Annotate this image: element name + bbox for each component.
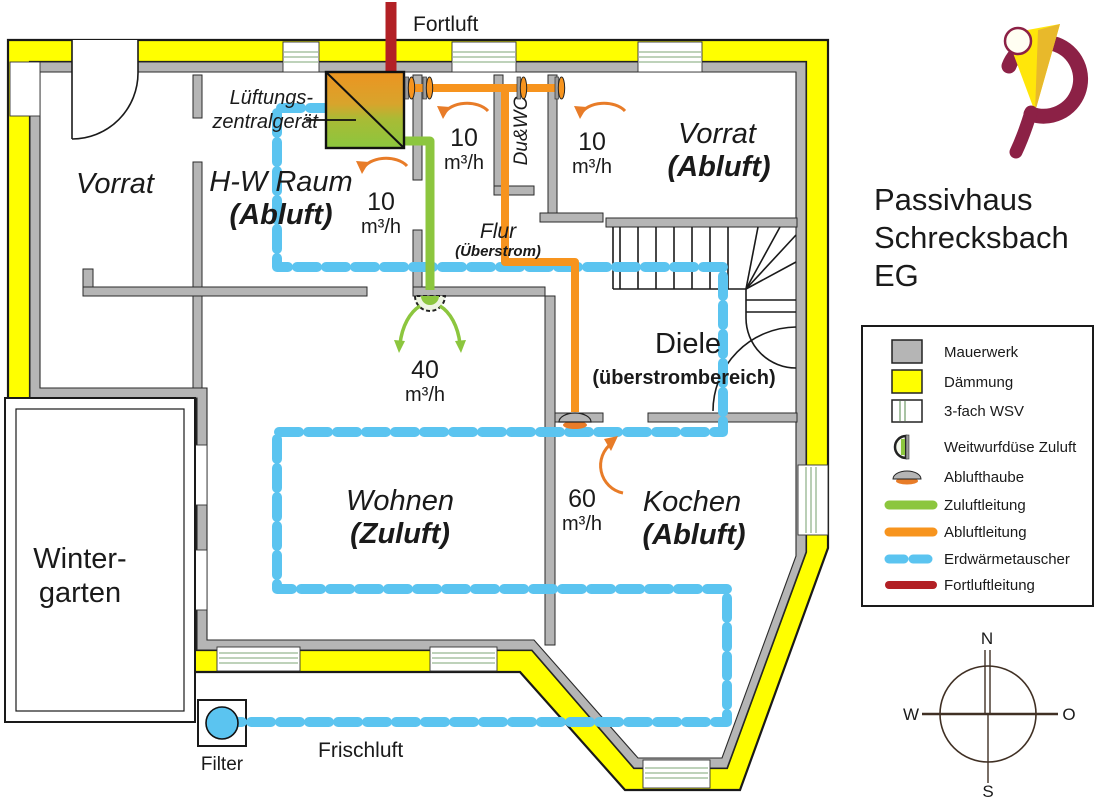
abluft-flow-arrow-wc [437,103,488,119]
ablufthaube [559,413,591,429]
compass-east: O [1062,705,1075,724]
entry-door-arc [72,73,138,139]
room-duwc: Du&WC [511,96,532,165]
frischluft-label: Frischluft [318,739,403,762]
flow-wc-unit: m³/h [444,152,484,174]
logo-circle [1005,28,1031,54]
legend-swatch-mauerwerk [892,340,922,363]
stairs-door-arc [746,318,796,368]
room-wohnen-mode: (Zuluft) [350,518,450,550]
abluft-flow-arrow-vorrat [574,103,625,119]
zuluft-flow-arrows [394,306,466,353]
room-vorrat-ne: Vorrat [678,118,758,150]
window-top-3 [638,42,702,72]
filter-disc [206,707,238,739]
flow-kochen-unit: m³/h [562,513,602,535]
unit-label-line1: Lüftungs- [230,87,314,109]
legend-label-abluftleitung: Abluftleitung [944,524,1027,541]
abluft-flow-arrow-hw [356,158,407,174]
room-wohnen: Wohnen [346,485,454,517]
compass-south: S [982,782,993,798]
room-hw-mode: (Abluft) [229,199,332,231]
wall-notch [10,62,40,116]
fortluft-label: Fortluft [413,13,479,36]
floor-plan: Fortluft Lüftungs- zentralgerät Vorrat H… [5,2,828,790]
room-flur-mode: (Überstrom) [455,243,541,260]
window-top-2 [452,42,516,72]
flow-hw-value: 10 [367,188,395,216]
flow-wc-value: 10 [450,124,478,152]
room-kochen-mode: (Abluft) [642,519,745,551]
flow-wohnen-unit: m³/h [405,384,445,406]
flow-wohnen-value: 40 [411,356,439,384]
window-south-2 [430,647,497,671]
flow-vorrat-unit: m³/h [572,156,612,178]
window-bay-south [643,760,710,788]
passivhaus-logo [1005,24,1081,152]
flow-vorrat-value: 10 [578,128,606,156]
legend: Mauerwerk Dämmung 3-fach WSV Weitwurfdüs… [862,326,1093,606]
room-diele-mode: (überstrombereich) [592,367,775,389]
room-vorrat-nw: Vorrat [76,168,156,200]
passivhaus-eg-diagram: Fortluft Lüftungs- zentralgerät Vorrat H… [0,0,1100,798]
legend-label-zuluftleitung: Zuluftleitung [944,497,1026,514]
legend-swatch-ablufthaube [893,471,921,485]
legend-swatch-daemmung [892,370,922,393]
window-top-1 [283,42,319,72]
page-title: Passivhaus Schrecksbach EG [874,182,1069,293]
room-wintergarten-line2: garten [39,577,121,609]
legend-label-wsv: 3-fach WSV [944,403,1024,420]
legend-label-fortluftleitung: Fortluftleitung [944,577,1035,594]
unit-label-line2: zentralgerät [211,111,319,133]
title-line3: EG [874,258,919,293]
flow-hw-unit: m³/h [361,216,401,238]
abluft-valve-4 [555,77,565,99]
abluft-valve-1 [405,77,415,99]
filter-label: Filter [201,754,244,775]
window-east [798,465,828,535]
compass-west: W [903,705,919,724]
entry-door-opening [72,40,138,139]
room-flur: Flur [480,220,517,243]
room-vorrat-ne-mode: (Abluft) [667,151,770,183]
room-hw: H-W Raum [209,166,352,198]
room-wintergarten-line1: Winter- [33,543,126,575]
compass-north: N [981,629,993,648]
room-diele: Diele [655,328,721,360]
compass-rose: N S W O [903,629,1076,798]
title-line2: Schrecksbach [874,220,1069,255]
legend-label-daemmung: Dämmung [944,374,1013,391]
title-line1: Passivhaus [874,182,1033,217]
abluft-valve-3 [517,77,527,99]
window-south-1 [217,647,300,671]
legend-swatch-weitwurfduese [895,435,909,459]
abluft-valve-2 [423,77,433,99]
legend-label-ablufthaube: Ablufthaube [944,469,1024,486]
legend-label-mauerwerk: Mauerwerk [944,344,1019,361]
legend-swatch-wsv [892,400,922,422]
weitwurfduese-zuluft [415,296,445,311]
flow-kochen-value: 60 [568,485,596,513]
legend-label-weitwurfduese: Weitwurfdüse Zuluft [944,439,1077,456]
room-kochen: Kochen [643,486,741,518]
legend-label-erdwaermetauscher: Erdwärmetauscher [944,551,1070,568]
abluft-flow-arrow-kochen [601,436,623,493]
